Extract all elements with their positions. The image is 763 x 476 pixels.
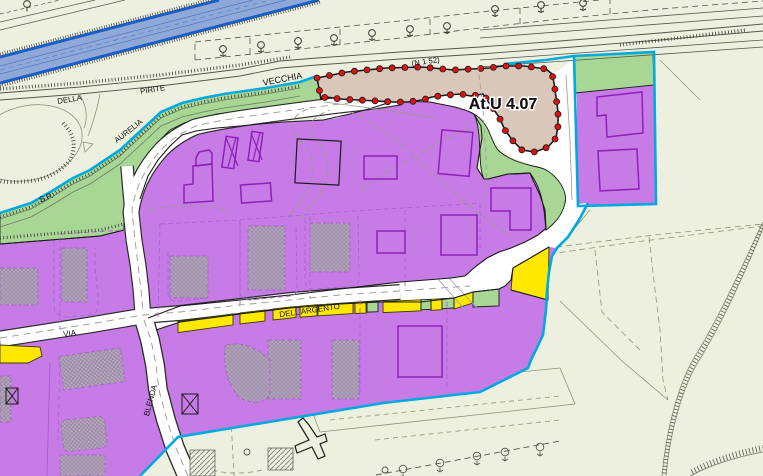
svg-text:VIA: VIA <box>63 328 78 339</box>
svg-text:At.U 4.07: At.U 4.07 <box>469 96 538 113</box>
